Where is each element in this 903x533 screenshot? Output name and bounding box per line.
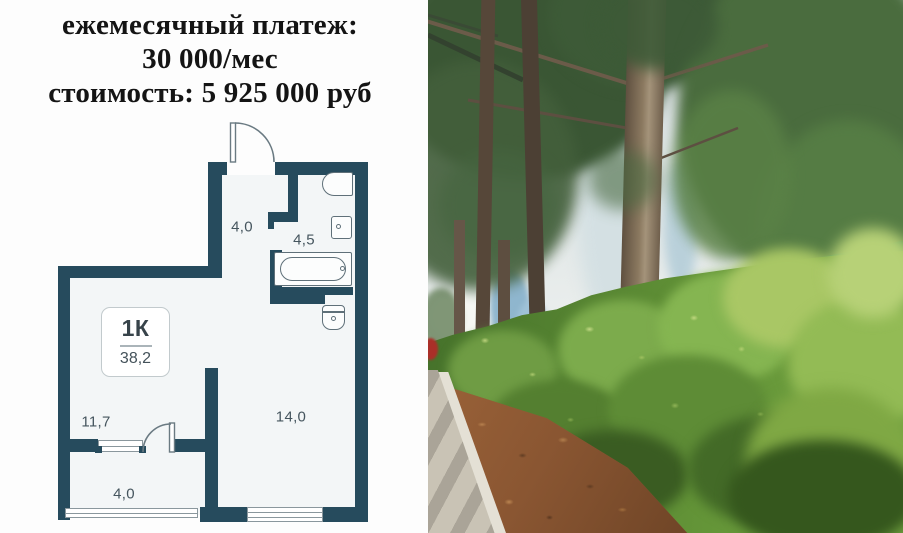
unit-type-label: 1К <box>102 315 169 342</box>
wall <box>355 162 368 522</box>
room-area-label-living: 14,0 <box>276 409 306 426</box>
wall <box>58 266 70 520</box>
toilet-lower-line <box>323 311 344 313</box>
wall <box>58 439 98 452</box>
washbasin-tap <box>336 224 341 229</box>
wall <box>95 446 102 453</box>
room-area-label-bathroom: 4,5 <box>293 232 315 249</box>
info-panel: ежемесячный платеж: 30 000/мес стоимость… <box>0 0 428 533</box>
unit-info-box: 1К 38,2 <box>101 307 170 377</box>
wall <box>323 507 368 522</box>
room-area-label-kitchen: 11,7 <box>81 414 110 431</box>
total-area-label: 38,2 <box>102 350 169 368</box>
window-kitchen <box>98 440 143 452</box>
window-balcony <box>65 508 198 518</box>
bathtub-inner <box>280 257 346 281</box>
listing-card: ежемесячный платеж: 30 000/мес стоимость… <box>0 0 903 533</box>
washbasin <box>331 216 352 239</box>
window-living <box>247 507 323 522</box>
bathtub-drain <box>340 266 345 271</box>
wall <box>139 446 146 453</box>
courtyard-photo <box>428 0 903 533</box>
wall <box>268 222 274 229</box>
wall <box>205 368 218 522</box>
wall <box>270 287 325 304</box>
wall <box>325 287 353 295</box>
photo-canopy-over-trunk <box>588 150 658 210</box>
wall <box>268 212 298 222</box>
wall <box>58 266 222 278</box>
wall <box>288 173 298 212</box>
toilet <box>322 172 353 196</box>
room-area-label-hallway: 4,0 <box>231 219 253 236</box>
unit-separator <box>120 345 152 347</box>
wall <box>208 162 222 278</box>
toilet-lower-dot <box>331 316 336 321</box>
floor-plan: 4,0 4,5 11,7 14,0 4,0 1К 38,2 <box>0 0 428 533</box>
photo-canopy <box>672 90 792 260</box>
room-area-label-balcony: 4,0 <box>113 486 135 503</box>
